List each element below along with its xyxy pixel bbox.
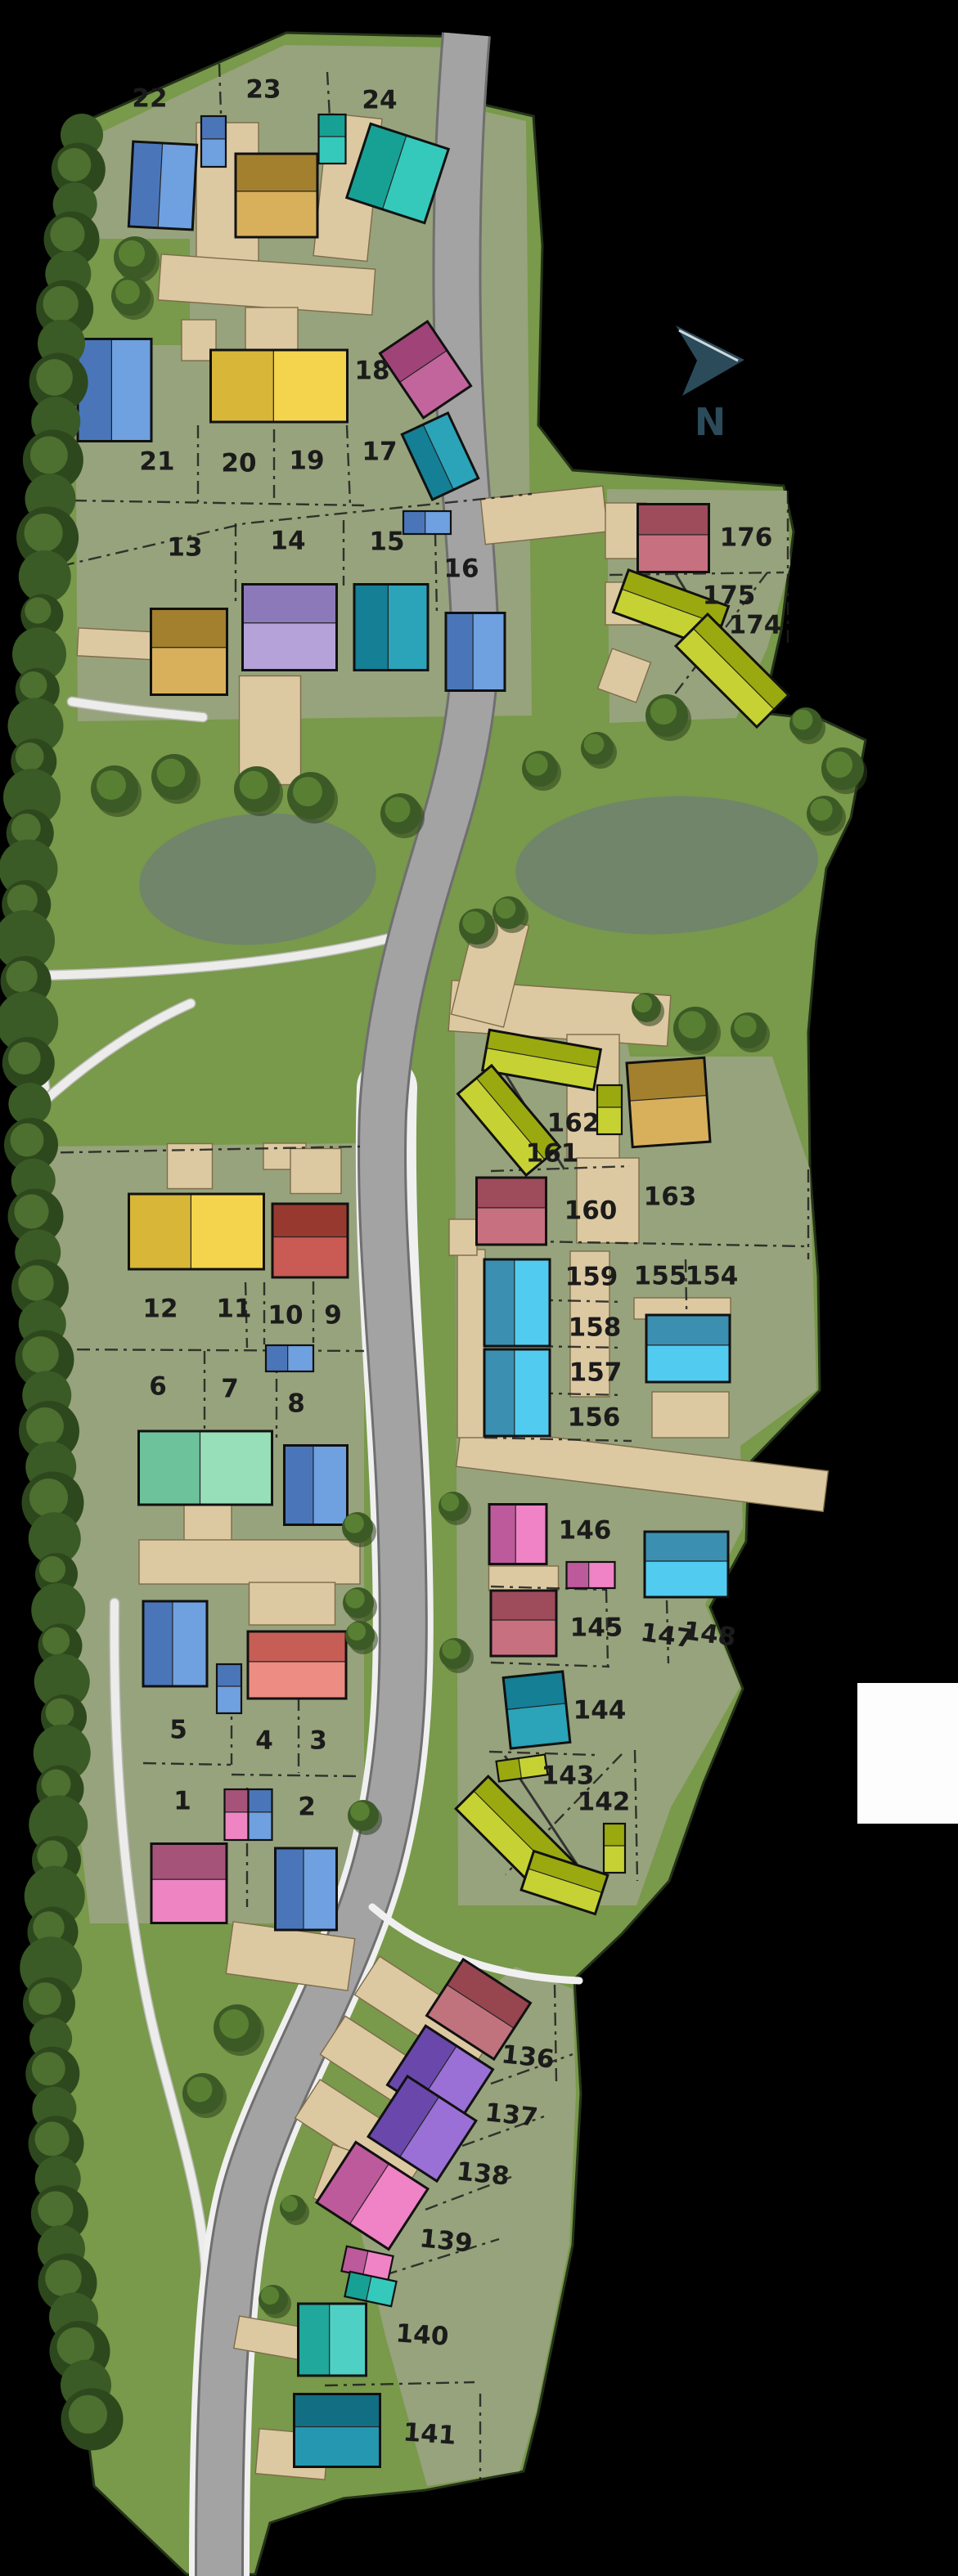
belt-tree-highlight — [18, 1265, 53, 1300]
house-160 — [477, 1178, 546, 1245]
house-5 — [143, 1601, 207, 1686]
plot-label-155: 155 — [634, 1262, 687, 1291]
house-147-148 — [645, 1532, 728, 1597]
belt-tree-highlight — [14, 1194, 48, 1228]
plot-label-18: 18 — [354, 357, 389, 386]
plot-label-144: 144 — [573, 1696, 627, 1726]
plot-label-162: 162 — [547, 1109, 600, 1138]
plot-label-156: 156 — [568, 1403, 621, 1433]
belt-tree-highlight — [69, 2395, 107, 2434]
belt-tree-highlight — [11, 814, 41, 843]
belt-tree-highlight — [42, 1770, 71, 1799]
plot-label-14: 14 — [270, 527, 305, 556]
house-144 — [503, 1672, 570, 1748]
plot-label-143: 143 — [542, 1761, 595, 1791]
house-21 — [78, 339, 151, 442]
belt-tree-highlight — [22, 1336, 59, 1373]
garage-6 — [217, 1664, 241, 1713]
driveway-25 — [250, 1582, 335, 1625]
garage-2 — [319, 114, 346, 164]
belt-tree-highlight — [57, 148, 91, 182]
plot-label-3: 3 — [309, 1726, 327, 1756]
plot-label-8: 8 — [287, 1389, 305, 1419]
plot-label-17: 17 — [362, 438, 397, 467]
driveway-4 — [245, 307, 298, 355]
belt-tree-highlight — [39, 1556, 65, 1582]
driveway-22 — [290, 1149, 341, 1194]
house-159-158 — [484, 1259, 550, 1346]
house-13 — [151, 609, 227, 695]
plot-label-16: 16 — [443, 554, 479, 584]
house-1 — [151, 1844, 227, 1923]
plot-label-23: 23 — [245, 75, 281, 105]
belt-tree-highlight — [38, 2191, 73, 2226]
driveway-34 — [449, 1219, 477, 1255]
driveway-24 — [139, 1540, 360, 1584]
garage-11 — [604, 1824, 625, 1873]
plot-label-160: 160 — [564, 1196, 618, 1226]
north-label: N — [695, 400, 726, 444]
plot-label-142: 142 — [578, 1788, 631, 1817]
belt-tree-highlight — [34, 2121, 69, 2156]
plot-label-176: 176 — [720, 523, 773, 553]
belt-tree-highlight — [36, 359, 73, 396]
house-176 — [638, 505, 709, 572]
plot-label-154: 154 — [686, 1262, 739, 1291]
garage-3 — [403, 511, 451, 534]
plot-label-11: 11 — [216, 1295, 251, 1324]
belt-tree-highlight — [43, 286, 78, 321]
plot-label-146: 146 — [559, 1516, 612, 1546]
plot-label-9: 9 — [324, 1301, 342, 1331]
house-22 — [128, 141, 196, 230]
plot-label-158: 158 — [569, 1313, 622, 1343]
driveway-33 — [457, 1250, 485, 1438]
belt-tree-highlight — [29, 1479, 68, 1517]
plot-label-19: 19 — [289, 447, 324, 476]
plot-label-13: 13 — [167, 533, 202, 563]
house-15 — [354, 585, 428, 671]
house-163 — [627, 1057, 710, 1147]
plot-label-2: 2 — [298, 1793, 316, 1822]
house-8 — [285, 1446, 348, 1525]
belt-tree-highlight — [20, 671, 47, 698]
house-14 — [243, 585, 337, 671]
house-4-3 — [248, 1631, 346, 1699]
plot-label-174: 174 — [729, 611, 782, 640]
house-146 — [489, 1505, 546, 1564]
belt-tree-highlight — [26, 1407, 64, 1445]
garage-8 — [249, 1789, 272, 1840]
house-141 — [295, 2394, 380, 2467]
house-155-154 — [646, 1315, 730, 1382]
house-10-9 — [272, 1204, 348, 1277]
belt-tree-highlight — [43, 1627, 70, 1654]
garage-1 — [201, 116, 226, 167]
house-145 — [491, 1591, 556, 1656]
belt-tree-highlight — [46, 1699, 74, 1727]
belt-tree-highlight — [45, 2260, 82, 2296]
plot-label-139: 139 — [418, 2224, 474, 2259]
belt-tree-highlight — [57, 2327, 95, 2365]
garage-7 — [225, 1789, 249, 1840]
plot-label-141: 141 — [403, 2417, 457, 2450]
belt-tree-highlight — [16, 743, 44, 771]
plot-label-24: 24 — [362, 86, 397, 115]
plot-label-7: 7 — [221, 1375, 239, 1404]
house-2 — [276, 1848, 337, 1930]
plot-label-161: 161 — [526, 1139, 579, 1169]
plot-label-163: 163 — [644, 1183, 697, 1212]
plot-label-12: 12 — [142, 1295, 178, 1324]
plot-label-145: 145 — [570, 1613, 623, 1643]
belt-tree-highlight — [29, 1982, 61, 2015]
house-12-11 — [129, 1194, 264, 1269]
white-patch — [857, 1683, 958, 1824]
site-plan-svg: 2223241821201917131415161761751741621611… — [0, 0, 958, 2576]
garage-9 — [567, 1562, 615, 1588]
house-23 — [236, 154, 317, 237]
belt-tree-highlight — [8, 1042, 41, 1075]
driveway-18 — [652, 1392, 729, 1438]
belt-tree-highlight — [25, 514, 63, 552]
house-6-7 — [139, 1431, 272, 1505]
house-140 — [299, 2304, 367, 2376]
house-16 — [446, 613, 505, 691]
plot-label-21: 21 — [139, 447, 174, 477]
belt-tree-highlight — [6, 961, 37, 992]
plot-label-157: 157 — [569, 1358, 623, 1388]
belt-tree-highlight — [30, 437, 68, 474]
garage-5 — [266, 1345, 313, 1371]
plot-label-15: 15 — [369, 527, 404, 557]
plot-label-138: 138 — [455, 2156, 510, 2192]
garage-4 — [597, 1085, 622, 1134]
belt-tree-highlight — [32, 2052, 65, 2085]
plot-label-140: 140 — [395, 2318, 450, 2351]
plot-label-20: 20 — [221, 449, 256, 478]
plot-label-6: 6 — [149, 1372, 167, 1402]
plot-label-159: 159 — [565, 1263, 618, 1292]
belt-tree-highlight — [25, 597, 51, 623]
plot-label-5: 5 — [169, 1716, 187, 1745]
belt-tree-highlight — [50, 217, 84, 251]
plot-label-175: 175 — [703, 581, 756, 611]
plot-label-10: 10 — [268, 1301, 303, 1331]
house-157-156 — [484, 1349, 550, 1436]
plot-label-1: 1 — [173, 1787, 191, 1816]
plot-label-4: 4 — [255, 1726, 273, 1756]
plot-label-136: 136 — [500, 2040, 555, 2075]
plot-label-137: 137 — [483, 2098, 539, 2133]
plot-label-22: 22 — [132, 84, 167, 114]
site-plan: 2223241821201917131415161761751741621611… — [0, 0, 958, 2576]
house-20-19 — [211, 350, 348, 422]
belt-tree-highlight — [11, 1124, 44, 1157]
